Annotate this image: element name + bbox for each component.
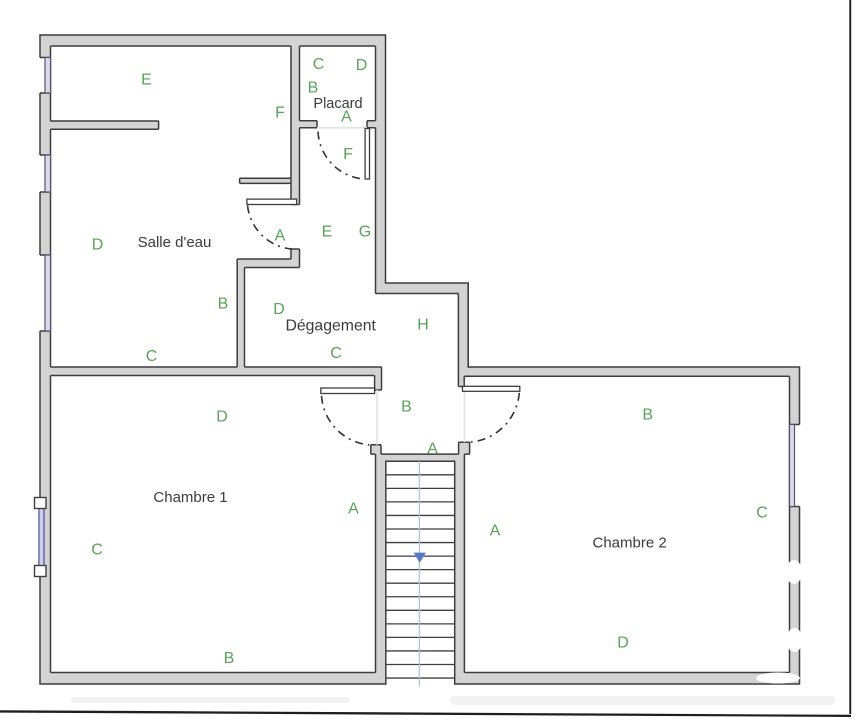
svg-text:B: B — [401, 399, 412, 416]
svg-text:D: D — [617, 635, 629, 652]
svg-text:A: A — [427, 441, 438, 458]
svg-text:B: B — [224, 650, 235, 667]
svg-text:E: E — [141, 72, 152, 89]
svg-text:Chambre 1: Chambre 1 — [153, 489, 227, 506]
svg-text:Chambre 2: Chambre 2 — [592, 535, 666, 552]
svg-text:A: A — [341, 109, 352, 126]
svg-text:D: D — [273, 301, 285, 318]
svg-text:Dégagement: Dégagement — [285, 318, 376, 335]
svg-text:C: C — [146, 348, 158, 365]
svg-text:A: A — [275, 228, 286, 245]
svg-text:B: B — [308, 80, 319, 97]
svg-text:B: B — [218, 296, 229, 313]
svg-text:D: D — [216, 409, 228, 426]
svg-text:C: C — [313, 56, 325, 73]
svg-text:F: F — [343, 146, 353, 163]
svg-text:E: E — [322, 224, 333, 241]
svg-text:D: D — [92, 237, 104, 254]
svg-text:C: C — [756, 505, 768, 522]
svg-text:B: B — [642, 407, 653, 424]
svg-text:D: D — [356, 57, 368, 74]
svg-text:Salle d'eau: Salle d'eau — [138, 234, 212, 251]
svg-text:Placard: Placard — [313, 96, 362, 112]
svg-text:A: A — [490, 523, 501, 540]
svg-text:F: F — [275, 105, 285, 122]
svg-text:C: C — [330, 345, 342, 362]
svg-text:A: A — [348, 501, 359, 518]
svg-text:C: C — [91, 542, 103, 559]
svg-text:G: G — [359, 224, 371, 241]
svg-text:H: H — [417, 317, 429, 334]
